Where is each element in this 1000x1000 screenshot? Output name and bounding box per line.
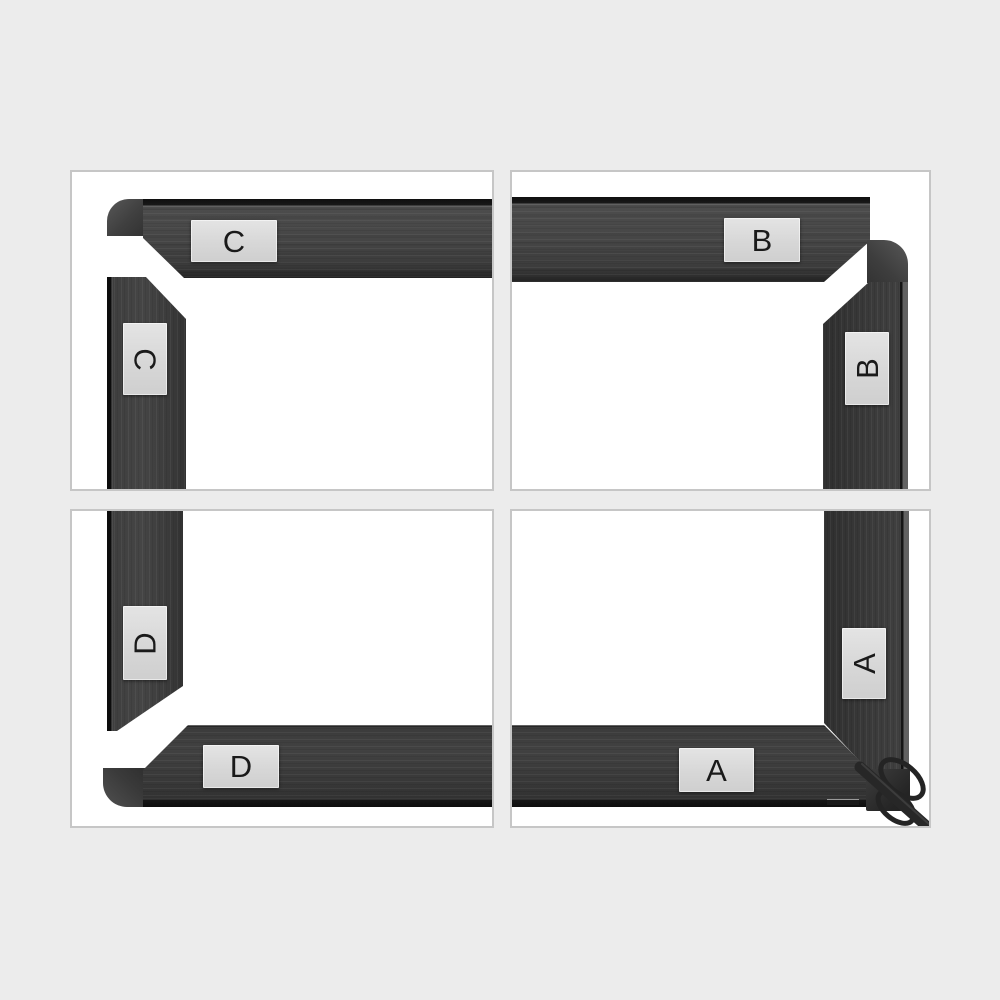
part-panel-bottom-left: D D: [70, 509, 494, 828]
part-label: C: [191, 220, 277, 262]
part-letter: A: [849, 653, 880, 674]
corner-cap: [107, 199, 144, 236]
corner-cap: [867, 240, 908, 283]
frame-rail-horizontal: [510, 197, 870, 282]
part-letter: C: [223, 226, 245, 257]
part-label: D: [203, 745, 279, 788]
part-label: B: [724, 218, 800, 262]
part-label: D: [123, 606, 167, 680]
part-panel-top-left: C C: [70, 170, 494, 491]
part-letter: D: [230, 751, 252, 782]
part-letter: D: [129, 632, 160, 654]
product-photo-grid: C C B B D D: [0, 0, 1000, 1000]
part-letter: A: [706, 755, 727, 786]
frame-rail-horizontal: [143, 725, 494, 807]
power-cable: [840, 749, 931, 828]
part-panel-bottom-right: A A: [510, 509, 931, 828]
corner-cap: [103, 768, 146, 807]
part-letter: B: [752, 225, 773, 256]
part-label: A: [842, 628, 886, 699]
part-label: A: [679, 748, 754, 792]
part-panel-top-right: B B: [510, 170, 931, 491]
part-label: B: [845, 332, 889, 405]
part-letter: B: [852, 358, 883, 379]
part-letter: C: [129, 348, 160, 370]
part-label: C: [123, 323, 167, 395]
